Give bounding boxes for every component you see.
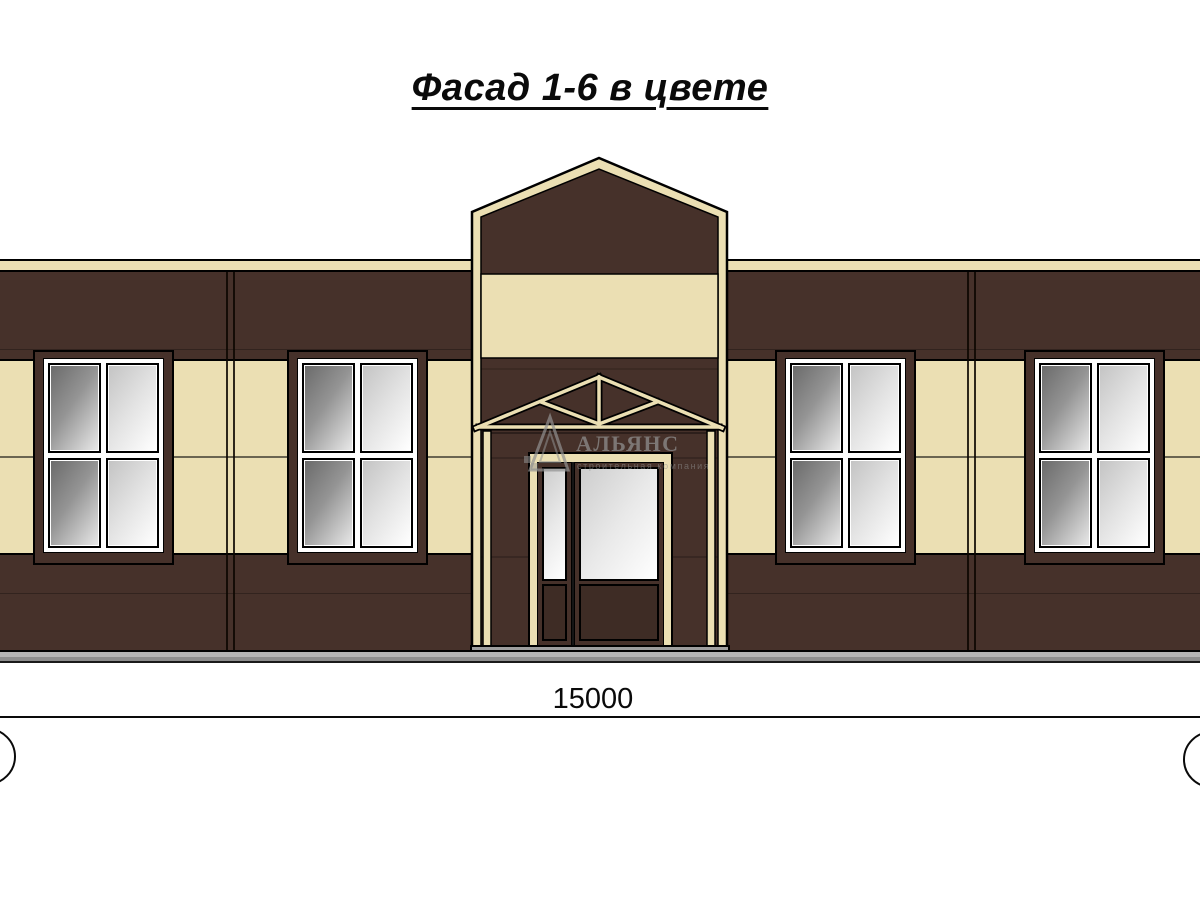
window-frame xyxy=(297,358,418,553)
window-pane xyxy=(360,458,413,548)
plinth xyxy=(0,650,1200,663)
drawing-title: Фасад 1-6 в цвете xyxy=(0,68,1180,108)
grid-bubble-left xyxy=(0,728,16,785)
panel-joint-vertical xyxy=(226,272,228,650)
window-pane xyxy=(848,458,901,548)
door-leaf xyxy=(574,462,664,646)
entrance-door-frame xyxy=(528,452,673,648)
window-pane xyxy=(1097,458,1150,548)
panel-joint-vertical xyxy=(967,272,969,650)
facade-drawing: Фасад 1-6 в цвете xyxy=(0,0,1200,900)
porch-post-left xyxy=(483,431,491,650)
dimension-line xyxy=(0,716,1200,718)
window-pane xyxy=(1097,363,1150,453)
door-glass xyxy=(542,467,567,581)
door-panel xyxy=(579,584,659,641)
door-panel xyxy=(542,584,567,641)
window-2 xyxy=(287,350,428,565)
window-3 xyxy=(775,350,916,565)
window-pane xyxy=(302,458,355,548)
window-pane xyxy=(360,363,413,453)
window-pane xyxy=(106,363,159,453)
grid-bubble-right xyxy=(1183,731,1200,788)
window-pane xyxy=(48,458,101,548)
window-pane xyxy=(790,458,843,548)
tower-cream-band xyxy=(481,274,718,358)
window-pane xyxy=(1039,363,1092,453)
porch-post-right xyxy=(707,431,715,650)
window-frame xyxy=(1034,358,1155,553)
window-pane xyxy=(1039,458,1092,548)
window-pane xyxy=(790,363,843,453)
door-glass xyxy=(579,467,659,581)
window-frame xyxy=(785,358,906,553)
dimension-label: 15000 xyxy=(0,684,1186,714)
window-pane xyxy=(302,363,355,453)
window-frame xyxy=(43,358,164,553)
window-pane xyxy=(106,458,159,548)
window-pane xyxy=(848,363,901,453)
door-sidelight xyxy=(537,462,572,646)
panel-joint-vertical xyxy=(974,272,976,650)
door-opening xyxy=(537,462,664,646)
panel-joint-vertical xyxy=(233,272,235,650)
window-pane xyxy=(48,363,101,453)
window-4 xyxy=(1024,350,1165,565)
window-1 xyxy=(33,350,174,565)
